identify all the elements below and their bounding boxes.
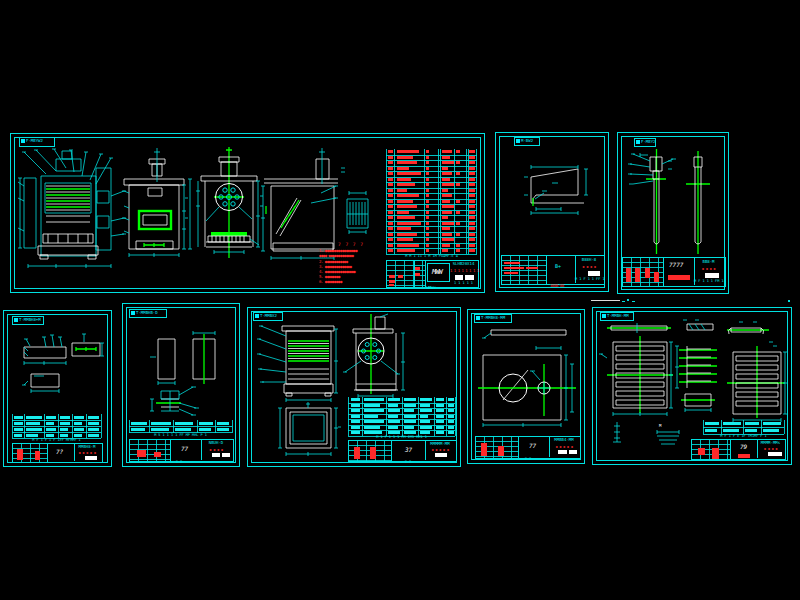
red-tick-row: 1 1 1 1 1 1 1 1: [450, 269, 477, 273]
sheet7-under-ticks: 7 7: [518, 458, 538, 462]
stray-line: [591, 300, 620, 301]
sheet6-red-ticks: ▪ ▪ ▪ ▪ ▪: [425, 448, 455, 452]
sheet5-tick-row: M 5 1 1 1 1 FF MP MHL P 1: [129, 434, 232, 438]
sheet-hammer-rods: F-MBY2 7777 BB8-M ▪ ▪ ▪ ▪ M F 1 1 1 FM 1: [617, 132, 729, 294]
sheet3-red-ticks: ▪ ▪ ▪ ▪: [694, 267, 723, 271]
stray-mark: [622, 301, 625, 302]
sheet-plate-bracket: T-MMBHB-D M 5 1 1 1 1 FF MP MHL P 1 77 N…: [122, 303, 240, 467]
sheet2-title-block: B+ B88H-8 ▪ ▪ ▪ ▪ M 1 F 1 1 FF 1: [501, 255, 605, 285]
sheet6-parts-table: [348, 397, 455, 436]
sheet2-red-ticks: ▪ ▪ ▪ ▪: [575, 265, 603, 269]
sheet4-title-block: 7? MMBH8-M ▪ ▪ ▪ ▪ ▪: [12, 443, 103, 463]
sheet6-code: MMMMM-MM: [425, 442, 455, 446]
sheet8-red-box: [738, 454, 750, 458]
sheet2-corner-label: M-BW2: [514, 137, 540, 146]
sheet2-number: B+: [555, 264, 561, 269]
sheet4-code: MMBH8-M: [74, 445, 100, 449]
housing-fan-view: [343, 314, 418, 402]
sheet8-parts-table: [703, 420, 784, 434]
sheet3-corner-label: F-MBY2: [634, 138, 656, 147]
sheet7-corner-label: T-MMBH8-MM: [474, 314, 512, 323]
stray-mark: [788, 300, 790, 302]
sheet5-code: NBUH-D: [201, 441, 231, 445]
rods-view: [628, 149, 723, 261]
hole-plate-view: [476, 324, 580, 432]
sheet4-parts-table: [12, 414, 101, 438]
main-front-view: [124, 148, 200, 263]
sheet7-title-block: 77 MMBB4-MM ▪ ▪ ▪ ▪ ▪: [475, 436, 581, 459]
sheet3-code: BB8-M: [694, 260, 723, 264]
sheet7-number: 77: [529, 443, 536, 449]
cad-canvas: F-MBYW2: [0, 0, 800, 600]
sheet8-red-ticks: ▪ ▪ ▪ ▪: [757, 447, 784, 451]
bom-table: [386, 149, 477, 254]
sheet-housing-views: T-MMBX2 M 1 F 1 1 1 FM IM1 MM1 1 37: [247, 307, 461, 467]
sheet4-corner-label: T-MMBH8+M: [12, 316, 44, 325]
technical-notes: 7 7 7 7 1. ●●●●●●●●●●●●●●●●●●●●●-●●●●●●●…: [319, 242, 383, 288]
sheet3-red-box: [668, 275, 690, 280]
sheet6-tick-row: M 1 F 1 1 1 FM IM1 MM1 1: [348, 436, 455, 440]
logo-scribble: MWW: [432, 269, 442, 276]
logo-box: MWW: [427, 263, 450, 282]
sheet6-under-ticks: 7 7: [398, 461, 418, 465]
sheet7-red-ticks: ▪ ▪ ▪ ▪ ▪: [549, 445, 579, 449]
bar-parts-view: [14, 329, 106, 414]
sheet5-title-block: 77 NBUH-D ▪ ▪ ▪ ▪: [129, 439, 234, 462]
drawing-code: SLHB20X14: [450, 262, 477, 266]
sheet3-title-block: 7777 BB8-M ▪ ▪ ▪ ▪ M F 1 1 1 FM 1: [622, 257, 726, 287]
sheet4-tick-row: M F 1 F 1 F 1FF MFMMF 1: [12, 439, 101, 443]
sheet-hole-plate: T-MMBH8-MM 77 MMBB4-MM ▪ ▪ ▪ ▪ ▪ 7 7: [467, 309, 585, 464]
plate-bracket-view: [138, 329, 233, 419]
sheet5-number: 77: [181, 446, 188, 452]
sheet3-number: 7777: [669, 262, 683, 268]
housing-square-view: [278, 402, 348, 460]
sheet2-bottom-red-label: 8888-88: [544, 284, 570, 288]
sheet-wedge-detail: M-BW2 B+ B88H-8 ▪ ▪ ▪ ▪ M 1 F 1 1 FF 1 8…: [495, 132, 609, 292]
wedge-view: [506, 165, 601, 240]
sheet5-corner-label: T-MMBHB-D: [129, 309, 167, 318]
bom-bottom-ticks: M M 1 II 1 M 1M PA4MF-E 4: [386, 255, 477, 259]
sheet-grate-parts: T-MMBH-MM M M F 1 F E 1F TM1MF F 1 79 MM…: [592, 307, 792, 465]
notes-lines: 1. ●●●●●●●●●●●●●●●●●●●●●-●●●●●●●●●●●●●2.…: [319, 248, 383, 284]
green-bar: [211, 232, 247, 236]
sheet5-under-ticks: 7 7: [169, 461, 189, 465]
stray-mark: [632, 301, 635, 302]
sheet8-code: MMMM-MMs: [757, 441, 784, 445]
sheet-bar-parts: T-MMBH8+M M F 1 F 1 F 1FF MFMMF 1 7? MMB…: [3, 310, 112, 467]
main-left-section-view: [16, 146, 128, 281]
sheet2-tick-row: M 1 F 1 1 FF 1: [575, 278, 603, 282]
main-title-block: MWW SLHB20X14 1 1 1 1 1 1 1 1 1 1 1 1 1: [386, 260, 479, 288]
sheet3-tick-row: M F 1 1 1 FM 1: [694, 280, 723, 284]
sheet5-red-ticks: ▪ ▪ ▪ ▪: [201, 448, 231, 452]
stray-mark: [627, 299, 629, 301]
sheet2-code: B88H-8: [575, 258, 603, 262]
sheet4-red-ticks: ▪ ▪ ▪ ▪ ▪: [74, 451, 100, 455]
sheet6-title-block: 37 MMMMM-MM ▪ ▪ ▪ ▪ ▪: [348, 440, 457, 462]
sheet6-number: 37: [405, 447, 412, 453]
sheet4-number: 7?: [56, 449, 63, 455]
sheet5-parts-table: [129, 420, 232, 433]
sheet7-code: MMBB4-MM: [549, 438, 579, 442]
sheet8-tick-row: M F 1 F E 1F TM1MF F 1: [703, 435, 784, 439]
sheet-main-assembly: F-MBYW2: [10, 133, 485, 293]
sheet8-number: 79: [740, 444, 747, 450]
sheet8-title-block: 79 MMMM-MMs ▪ ▪ ▪ ▪: [691, 439, 786, 460]
sheet-bottom-label: WMWr: [419, 286, 443, 290]
green-window: [139, 211, 171, 229]
sheet8-m-label: M: [659, 424, 661, 428]
